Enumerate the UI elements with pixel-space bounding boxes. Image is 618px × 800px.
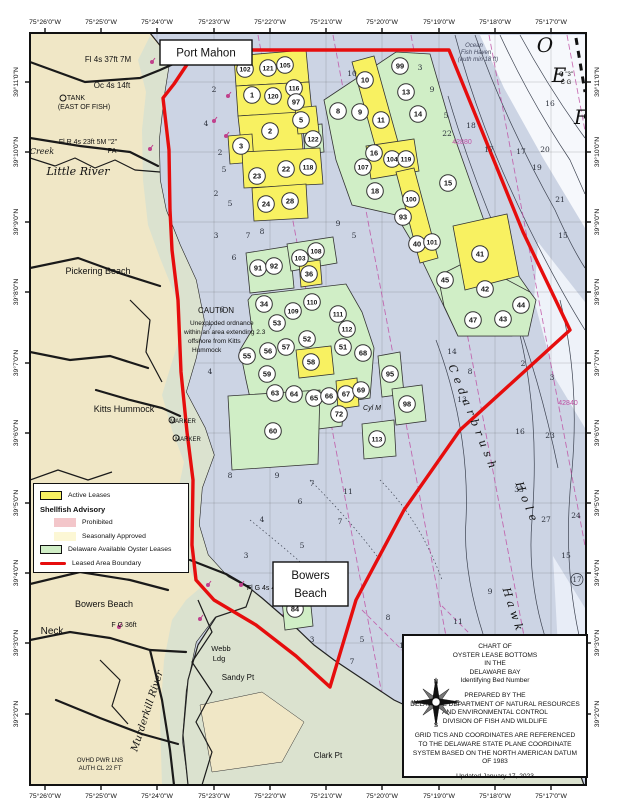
town-label: Port Mahon [176,48,235,60]
latitude-label-right: 39°5'0"N [593,490,601,517]
depth-sounding: 9 [430,85,435,94]
latitude-label-right: 39°2'0"N [593,701,601,728]
latitude-label-right: 39°4'0"N [593,560,601,587]
depth-sounding: 6 [232,253,237,262]
latitude-label-right: 39°11'0"N [593,67,601,97]
legend-label: Delaware Available Oyster Leases [68,546,171,553]
bed-number-51: 51 [339,343,347,352]
legend-label: Active Leases [68,492,110,499]
place-label: OVHD PWR LNS [77,758,123,764]
bed-number-100: 100 [405,197,416,204]
bed-number-44: 44 [517,301,526,310]
bed-number-55: 55 [243,352,251,361]
bed-number-63: 63 [271,389,279,398]
depth-sounding: 8 [260,227,265,236]
bed-number-95: 95 [386,370,394,379]
place-label: MARKER [170,419,196,425]
bed-number-5: 5 [299,116,303,125]
bed-number-99: 99 [396,62,404,71]
bed-number-45: 45 [441,276,449,285]
depth-sounding: 15 [561,551,571,560]
place-label: Oc 4s 14ft [94,81,131,90]
place-label: offshore from Kitts [188,338,241,345]
bed-number-103: 103 [294,256,305,263]
active-lease-swatch [40,491,62,500]
bed-number-97: 97 [292,98,300,107]
bed-number-10: 10 [361,76,369,85]
prohibited-swatch [54,518,76,527]
bed-number-112: 112 [342,327,353,334]
latitude-label-right: 39°9'0"N [593,209,601,236]
depth-sounding: 6 [298,497,303,506]
place-label: PA [108,148,117,155]
depth-sounding: 11 [453,617,463,626]
depth-sounding: 21 [555,195,565,204]
grid-note-line: GRID TICS AND COORDINATES ARE REFERENCED [404,732,586,741]
town-label: Beach [294,588,327,600]
latitude-label-left: 39°5'0"N [12,490,20,517]
bed-number-53: 53 [273,319,281,328]
legend-label: Leased Area Boundary [72,560,141,567]
bed-number-98: 98 [403,400,411,409]
compass-s: S [434,722,439,728]
longitude-label-bottom: 75°18'0"W [479,792,511,800]
bed-number-60: 60 [269,427,277,436]
place-label: Hummock [192,347,222,354]
bed-number-92: 92 [270,262,278,271]
bed-number-42: 42 [481,285,489,294]
place-label: Fish Haven [461,50,492,56]
legend-header: Shellfish Advisory [40,503,184,517]
place-label: Pickering Beach [65,266,130,276]
depth-sounding: 4 [204,119,209,128]
longitude-label-top: 75°20'0"W [366,18,398,26]
longitude-label-bottom: 75°20'0"W [366,792,398,800]
depth-sounding: 9 [336,219,341,228]
depth-sounding: 2 [214,189,219,198]
bed-number-23: 23 [253,172,261,181]
latitude-label-right: 39°8'0"N [593,279,601,306]
updated-date: Updated January 17, 2023 [404,773,586,782]
bed-number-22: 22 [282,165,290,174]
bed-number-58: 58 [307,358,315,367]
bed-number-28: 28 [286,197,294,206]
longitude-label-top: 75°25'0"W [85,18,117,26]
bed-number-118: 118 [303,165,314,172]
bed-number-59: 59 [263,370,271,379]
depth-sounding: 4 [260,515,265,524]
place-label: Webb [211,644,230,653]
grid-note-line: SYSTEM BASED ON THE NORTH AMERICAN DATUM [404,750,586,759]
depth-sounding: 27 [541,515,551,524]
bed-number-102: 102 [239,67,250,74]
depth-sounding: 7 [310,479,315,488]
legend-header-label: Shellfish Advisory [40,505,105,514]
bed-number-47: 47 [469,316,477,325]
place-label: F G 36ft [111,622,136,629]
depth-sounding: 8 [228,471,233,480]
depth-sounding: 3 [214,231,219,240]
longitude-label-top: 75°26'0"W [29,18,61,26]
town-label: Bowers [291,570,330,582]
bed-number-3: 3 [239,142,243,151]
bed-number-67: 67 [342,390,350,399]
bed-number-69: 69 [357,386,365,395]
bed-number-108: 108 [310,249,321,256]
legend-label: Seasonally Approved [82,533,146,540]
longitude-label-top: 75°19'0"W [423,18,455,26]
depth-sounding: 5 [300,541,305,550]
bed-number-72: 72 [335,410,343,419]
depth-sounding: 5 [444,111,449,120]
longitude-label-bottom: 75°24'0"W [141,792,173,800]
depth-sounding: 7 [338,517,343,526]
legend-label: Prohibited [82,519,113,526]
latitude-label-right: 39°6'0"N [593,420,601,447]
latitude-label-left: 39°9'0"N [12,209,20,236]
depth-sounding: 22 [442,129,452,138]
compass-n: N [434,678,439,685]
bed-number-15: 15 [444,179,452,188]
available-lease-swatch [40,545,62,554]
latitude-label-left: 39°10'0"N [12,137,20,167]
legend-row-active: Active Leases [40,489,184,503]
legend-row-available: Delaware Available Oyster Leases [40,543,184,557]
bed-number-111: 111 [333,312,344,319]
place-label: Unexploded ordnance [190,320,254,327]
longitude-label-top: 75°24'0"W [141,18,173,26]
place-label: Clark Pt [314,751,343,760]
circled-depth-value: 17 [573,576,582,584]
title-line: IN THE [404,660,586,669]
bed-number-116: 116 [289,86,300,93]
latitude-label-left: 39°4'0"N [12,560,20,587]
longitude-label-top: 75°21'0"W [310,18,342,26]
place-label: within an area extending 2.3 [183,329,266,336]
depth-sounding: 5 [352,231,357,240]
latitude-label-left: 39°8'0"N [12,279,20,306]
depth-sounding: 16 [515,427,525,436]
legend: Active Leases Shellfish Advisory Prohibi… [33,483,189,573]
bed-number-64: 64 [290,390,299,399]
depth-sounding: 19 [532,163,542,172]
place-label: MARKER [175,437,201,443]
bed-number-18: 18 [371,187,379,196]
latitude-label-right: 39°10'0"N [593,137,601,167]
place-label: C G [561,80,572,86]
legend-row-boundary: Leased Area Boundary [40,557,184,571]
bed-number-109: 109 [287,309,298,316]
compass-rose-icon: N E S W [410,676,462,728]
bed-number-43: 43 [499,315,507,324]
longitude-label-bottom: 75°19'0"W [423,792,455,800]
longitude-label-bottom: 75°21'0"W [310,792,342,800]
longitude-label-bottom: 75°26'0"W [29,792,61,800]
depth-sounding: 17 [516,147,526,156]
latitude-label-right: 39°7'0"N [593,350,601,377]
bed-number-14: 14 [414,110,423,119]
bed-number-101: 101 [426,240,437,247]
depth-sounding: 7 [246,231,251,240]
longitude-label-top: 75°23'0"W [198,18,230,26]
place-label: Sandy Pt [222,673,255,682]
grid-note-line: OF 1983 [404,758,586,767]
bed-number-57: 57 [282,343,290,352]
bed-number-8: 8 [336,107,340,116]
bed-number-65: 65 [310,394,318,403]
latitude-label-left: 39°7'0"N [12,350,20,377]
depth-sounding: 7 [350,657,355,666]
depth-sounding: 2 [212,85,217,94]
place-label: Kitts Hummock [94,404,155,414]
depth-sounding: 2 [521,359,526,368]
seasonally-approved-swatch [54,532,76,541]
bed-number-52: 52 [303,335,311,344]
depth-sounding: 17 [484,145,494,154]
bed-number-93: 93 [399,213,407,222]
depth-sounding: 3 [244,551,249,560]
longitude-label-top: 75°22'0"W [254,18,286,26]
latitude-label-left: 39°3'0"N [12,630,20,657]
bed-number-2: 2 [268,127,272,136]
place-label: Fl R 4s 23ft 5M "2" [59,139,118,146]
depth-sounding: 11 [343,487,353,496]
bed-number-91: 91 [254,264,262,273]
bed-number-9: 9 [358,108,362,117]
bed-number-122: 122 [307,137,318,144]
bed-number-113: 113 [372,437,383,444]
bed-number-34: 34 [260,300,269,309]
depth-sounding: 9 [275,471,280,480]
longitude-label-bottom: 75°17'0"W [535,792,567,800]
longitude-label-top: 75°18'0"W [479,18,511,26]
bed-number-40: 40 [413,240,421,249]
legend-row-seasonal: Seasonally Approved [54,530,184,544]
bed-number-66: 66 [325,392,333,401]
depth-sounding: 18 [466,121,476,130]
title-line: OYSTER LEASE BOTTOMS [404,652,586,661]
bed-number-105: 105 [279,63,290,70]
bed-number-121: 121 [262,66,273,73]
bed-number-119: 119 [401,157,412,164]
place-label: (auth min 18 ft) [458,57,498,63]
place-label: Fl 4s 37ft 7M [85,55,132,64]
title-box: N E S W CHART OF OYSTER LEASE BOTTOMS IN… [402,634,588,778]
longitude-label-bottom: 75°25'0"W [85,792,117,800]
latitude-label-right: 39°3'0"N [593,630,601,657]
title-line: CHART OF [404,643,586,652]
place-label: TANK [67,95,85,102]
place-label: AUTH CL 22 FT [79,766,122,772]
place-label: Creek [30,147,54,156]
place-label: O [537,33,553,57]
depth-sounding: 5 [228,199,233,208]
depth-sounding: 5 [222,165,227,174]
legend-row-prohibited: Prohibited [54,516,184,530]
place-label: Ldg [213,654,226,663]
bed-number-110: 110 [307,300,318,307]
bed-number-16: 16 [370,149,378,158]
grid-note-line: TO THE DELAWARE STATE PLANE COORDINATE [404,741,586,750]
latitude-label-left: 39°6'0"N [12,420,20,447]
place-label: 42880 [452,139,472,146]
bed-number-24: 24 [262,200,271,209]
depth-sounding: 5 [360,635,365,644]
bed-number-68: 68 [359,349,367,358]
depth-sounding: 3 [550,373,555,382]
depth-sounding: 16 [545,99,555,108]
boundary-line-swatch [40,562,66,566]
longitude-label-bottom: 75°23'0"W [198,792,230,800]
bed-number-36: 36 [305,270,313,279]
depth-sounding: 24 [571,511,581,520]
bed-number-56: 56 [264,347,272,356]
bed-number-11: 11 [377,116,385,125]
place-label: G "3" [559,72,573,78]
depth-sounding: 10 [347,69,357,78]
depth-sounding: 2 [218,148,223,157]
place-label: Bowers Beach [75,599,133,609]
compass-e: E [455,699,460,706]
bed-number-1: 1 [250,91,254,100]
longitude-label-bottom: 75°22'0"W [254,792,286,800]
longitude-label-top: 75°17'0"W [535,18,567,26]
bed-number-107: 107 [357,165,368,172]
place-label: Ocean [465,43,483,49]
place-label: Cyl M [363,405,381,412]
depth-sounding: 20 [540,145,550,154]
chart-page: 2425253678951039518171720192115162232148… [0,0,618,800]
depth-sounding: 9 [488,587,493,596]
latitude-label-left: 39°11'0"N [12,67,20,97]
depth-sounding: 3 [310,635,315,644]
depth-sounding: 8 [468,367,473,376]
place-label: CAUTION [198,306,234,315]
depth-sounding: 3 [418,63,423,72]
place-label: (EAST OF FISH) [58,104,110,111]
depth-sounding: 14 [447,347,457,356]
depth-sounding: 8 [386,613,391,622]
bed-number-41: 41 [476,250,484,259]
place-label: 42840 [558,400,578,407]
depth-sounding: 23 [545,431,555,440]
bed-number-104: 104 [386,157,397,164]
place-label: Neck [41,626,65,637]
latitude-label-left: 39°2'0"N [12,701,20,728]
bed-number-13: 13 [402,88,410,97]
bed-number-120: 120 [267,94,278,101]
depth-sounding: 15 [558,231,568,240]
compass-w: W [412,699,419,706]
place-label: Little River [46,165,111,178]
depth-sounding: 4 [208,367,213,376]
